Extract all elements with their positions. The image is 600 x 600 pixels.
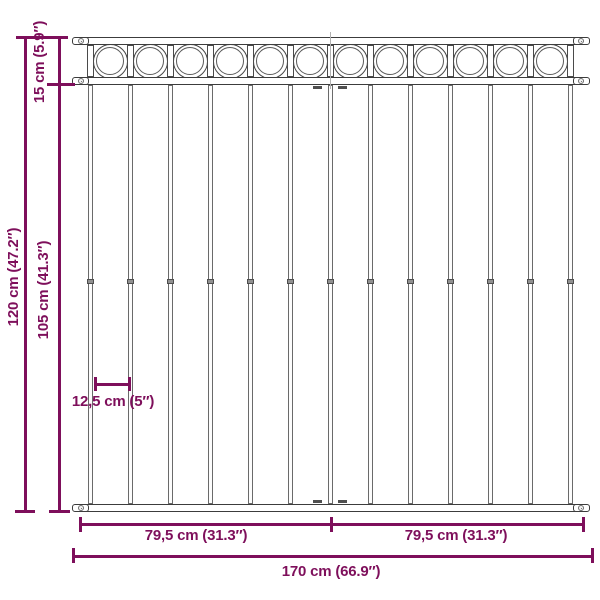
ring [213,44,248,79]
ring-post [487,45,494,77]
top-rail [78,37,585,45]
vertical-bar [168,85,173,504]
ring-post [87,45,94,77]
dim-tick [15,510,35,513]
dim-tick [330,517,333,532]
ring [533,44,568,79]
dim-label-bar-spacing: 12,5 cm (5″) [53,393,173,411]
dim-label-lower-section: 105 cm (41.3″) [35,234,53,346]
dim-line [24,37,27,512]
bar-joint-sleeve [127,279,134,284]
vertical-bar [248,85,253,504]
bar-joint-sleeve [487,279,494,284]
dim-tick [79,517,82,532]
vertical-bar [88,85,93,504]
bar-joint-sleeve [567,279,574,284]
ring-post [167,45,174,77]
joint-mark [313,500,322,503]
screw-icon [578,78,584,84]
ring [133,44,168,79]
dim-line [73,555,592,558]
bar-joint-sleeve [247,279,254,284]
dim-tick [94,377,97,391]
dim-label-top-section: 15 cm (5.9″) [31,17,49,107]
vertical-bar [208,85,213,504]
dim-label-left-half: 79,5 cm (31.3″) [126,527,266,545]
joint-mark [338,86,347,89]
bar-joint-sleeve [407,279,414,284]
center-joint-line [330,32,331,89]
ring-post [127,45,134,77]
dim-line [96,383,130,386]
ring-post [247,45,254,77]
screw-icon [78,505,84,511]
screw-icon [578,505,584,511]
vertical-bar [528,85,533,504]
ring [93,44,128,79]
screw-icon [578,38,584,44]
vertical-bar [488,85,493,504]
dim-tick [591,548,594,563]
dim-tick [582,517,585,532]
dim-line [58,37,61,512]
vertical-bar [328,85,333,504]
ring-post [447,45,454,77]
bar-joint-sleeve [327,279,334,284]
ring [373,44,408,79]
ring [493,44,528,79]
ring [453,44,488,79]
vertical-bar [448,85,453,504]
joint-mark [313,86,322,89]
bar-joint-sleeve [367,279,374,284]
vertical-bar [368,85,373,504]
bar-joint-sleeve [167,279,174,284]
ring-post [407,45,414,77]
dim-tick [49,510,70,513]
fence-panel-diagram: 120 cm (47.2″) 15 cm (5.9″) 105 cm (41.3… [0,0,600,600]
dim-tick [128,377,131,391]
screw-icon [78,38,84,44]
bottom-rail [78,504,585,512]
second-rail [78,77,585,85]
bar-joint-sleeve [527,279,534,284]
ring [253,44,288,79]
dim-label-right-half: 79,5 cm (31.3″) [386,527,526,545]
ring [333,44,368,79]
ring-post [527,45,534,77]
vertical-bar [128,85,133,504]
vertical-bar [408,85,413,504]
vertical-bar [568,85,573,504]
ring [413,44,448,79]
screw-icon [78,78,84,84]
ring-post [367,45,374,77]
ring-post [287,45,294,77]
joint-mark [338,500,347,503]
bar-joint-sleeve [207,279,214,284]
dim-tick [72,548,75,563]
bar-joint-sleeve [87,279,94,284]
dim-label-total-width: 170 cm (66.9″) [256,563,406,581]
bar-joint-sleeve [287,279,294,284]
vertical-bar [288,85,293,504]
ring [173,44,208,79]
dim-tick [47,83,75,86]
bar-joint-sleeve [447,279,454,284]
ring-post [207,45,214,77]
ring-post [567,45,574,77]
ring [293,44,328,79]
dim-label-total-height: 120 cm (47.2″) [5,221,23,333]
